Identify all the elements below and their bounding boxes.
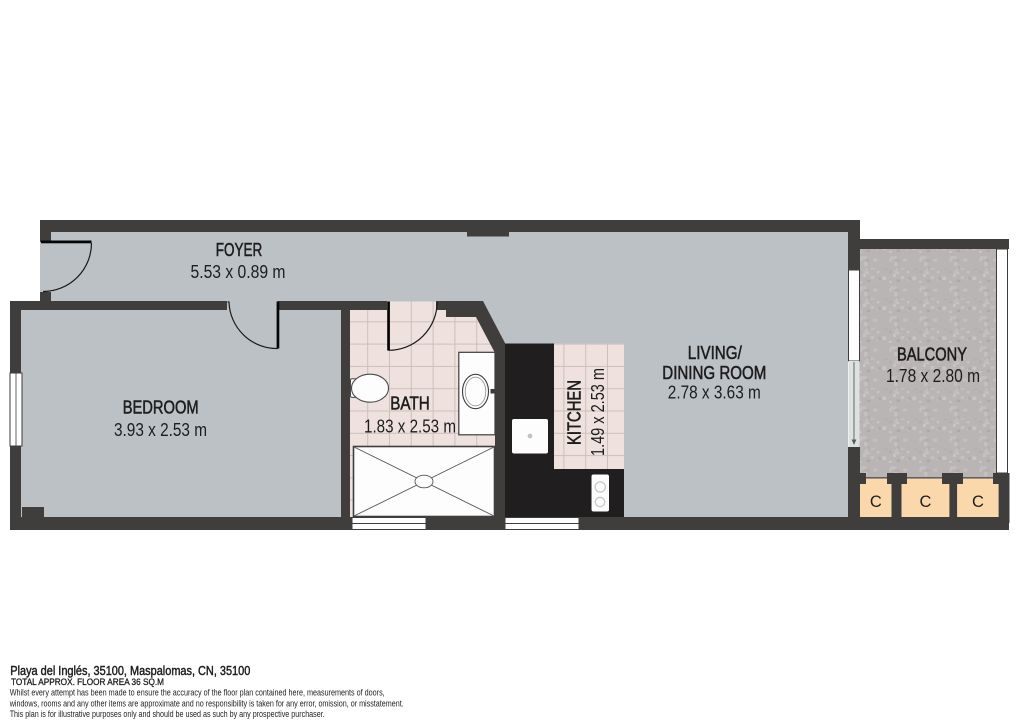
svg-text:5.53 x 0.89 m: 5.53 x 0.89 m — [191, 262, 286, 282]
svg-text:2.78 x 3.63 m: 2.78 x 3.63 m — [668, 383, 761, 403]
svg-text:C: C — [920, 493, 932, 511]
svg-text:1.49 x 2.53 m: 1.49 x 2.53 m — [588, 368, 608, 456]
svg-text:3.93 x 2.53 m: 3.93 x 2.53 m — [114, 420, 207, 440]
svg-text:Playa del Inglés, 35100, Maspa: Playa del Inglés, 35100, Maspalomas, CN,… — [10, 663, 250, 678]
svg-text:1.78 x 2.80 m: 1.78 x 2.80 m — [886, 366, 980, 386]
svg-text:C: C — [870, 493, 882, 511]
svg-text:BATH: BATH — [390, 394, 430, 414]
svg-text:C: C — [972, 493, 984, 511]
svg-text:FOYER: FOYER — [216, 240, 263, 260]
svg-text:KITCHEN: KITCHEN — [565, 380, 585, 445]
svg-text:TOTAL APPROX. FLOOR AREA 36 SQ: TOTAL APPROX. FLOOR AREA 36 SQ.M — [11, 677, 164, 687]
svg-text:windows, rooms and any other i: windows, rooms and any other items are a… — [9, 699, 404, 709]
svg-text:BALCONY: BALCONY — [897, 345, 967, 365]
svg-text:LIVING/: LIVING/ — [688, 343, 742, 363]
svg-text:Whilst every attempt has been: Whilst every attempt has been made to en… — [10, 688, 385, 698]
svg-text:BEDROOM: BEDROOM — [123, 398, 199, 418]
svg-text:DINING ROOM: DINING ROOM — [662, 363, 766, 383]
svg-text:1.83 x 2.53 m: 1.83 x 2.53 m — [364, 417, 456, 437]
svg-text:This plan is for illustrative: This plan is for illustrative purposes o… — [10, 709, 325, 719]
